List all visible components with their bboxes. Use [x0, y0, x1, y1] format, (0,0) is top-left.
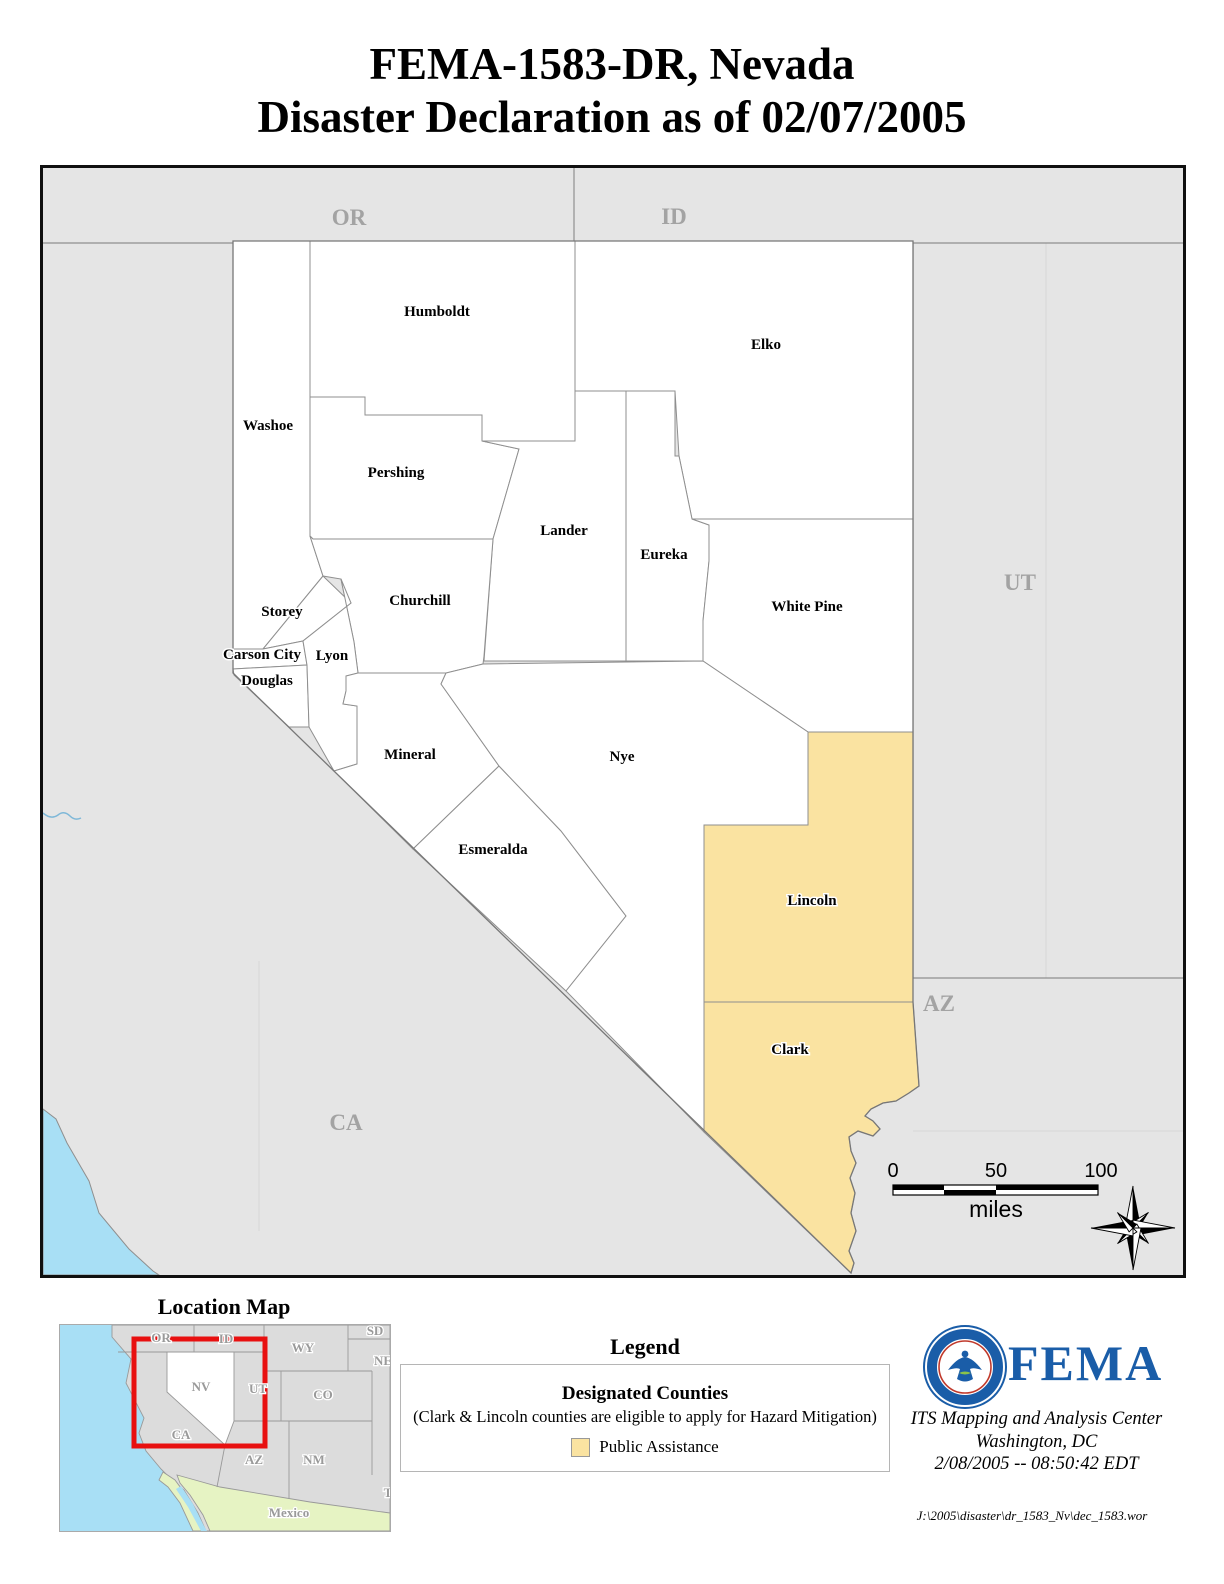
inset-state-label-sd: SD	[367, 1325, 384, 1338]
legend-title: Legend	[400, 1334, 890, 1360]
agency-line-1: ITS Mapping and Analysis Center	[894, 1408, 1179, 1431]
scale-tick-0: 0	[887, 1160, 898, 1182]
county-label-mineral: Mineral	[384, 747, 436, 763]
county-label-white-pine: White Pine	[771, 599, 843, 615]
location-map: ORIDWYSDNENVUTCOCAAZNMTMexico	[59, 1324, 391, 1532]
inset-state-label-az: AZ	[245, 1452, 263, 1467]
county-label-nye: Nye	[610, 749, 635, 765]
legend-item: Public Assistance	[401, 1437, 889, 1457]
state-label-or: OR	[332, 205, 367, 230]
public-assistance-swatch-icon	[571, 1438, 590, 1457]
main-map: HumboldtElkoWashoePershingLanderEurekaWh…	[40, 165, 1186, 1278]
file-path: J:\2005\disaster\dr_1583_Nv\dec_1583.wor	[880, 1508, 1184, 1524]
location-map-svg: ORIDWYSDNENVUTCOCAAZNMTMexico	[60, 1325, 390, 1531]
legend-item-label: Public Assistance	[599, 1437, 718, 1457]
fema-wordmark: FEMA	[1008, 1334, 1163, 1392]
state-label-az: AZ	[923, 991, 955, 1016]
county-label-lander: Lander	[540, 523, 588, 539]
page: FEMA-1583-DR, Nevada Disaster Declaratio…	[0, 0, 1224, 1584]
inset-state-label-ne: NE	[374, 1353, 390, 1368]
location-map-title: Location Map	[59, 1294, 389, 1320]
inset-state-label-ca: CA	[172, 1427, 191, 1442]
county-label-lyon: Lyon	[316, 648, 349, 664]
inset-state-label-ut: UT	[249, 1381, 267, 1396]
inset-state-label-id: ID	[219, 1331, 233, 1346]
county-label-washoe: Washoe	[243, 418, 293, 434]
scale-seg-1	[893, 1185, 944, 1190]
state-label-ca: CA	[329, 1110, 363, 1135]
county-label-esmeralda: Esmeralda	[458, 842, 528, 858]
inset-state-label-co: CO	[313, 1387, 333, 1402]
inset-state-label-nm: NM	[303, 1452, 325, 1467]
agency-block: ITS Mapping and Analysis Center Washingt…	[894, 1408, 1179, 1476]
nevada-map-svg: HumboldtElkoWashoePershingLanderEurekaWh…	[43, 168, 1183, 1275]
title-line-2: Disaster Declaration as of 02/07/2005	[0, 91, 1224, 144]
agency-line-3: 2/08/2005 -- 08:50:42 EDT	[894, 1453, 1179, 1476]
state-label-ut: UT	[1004, 570, 1036, 595]
page-title: FEMA-1583-DR, Nevada Disaster Declaratio…	[0, 38, 1224, 144]
county-label-carson-city: Carson City	[223, 647, 301, 663]
inset-state-label-mexico: Mexico	[269, 1505, 309, 1520]
scale-seg-2	[996, 1185, 1098, 1190]
county-label-elko: Elko	[751, 337, 781, 353]
agency-line-2: Washington, DC	[894, 1431, 1179, 1454]
county-label-storey: Storey	[261, 604, 303, 620]
inset-state-label-nv: NV	[192, 1379, 211, 1394]
county-label-churchill: Churchill	[389, 593, 450, 609]
dhs-seal-icon	[921, 1323, 1009, 1411]
county-label-douglas: Douglas	[241, 673, 293, 689]
scale-tick-100: 100	[1084, 1160, 1117, 1182]
state-label-id: ID	[661, 204, 687, 229]
county-label-clark: Clark	[771, 1042, 809, 1058]
county-label-lincoln: Lincoln	[787, 893, 837, 909]
inset-state-label-wy: WY	[292, 1340, 315, 1355]
inset-state-label-or: OR	[151, 1330, 171, 1345]
title-line-1: FEMA-1583-DR, Nevada	[0, 38, 1224, 91]
legend-heading: Designated Counties	[401, 1383, 889, 1405]
legend-note: (Clark & Lincoln counties are eligible t…	[401, 1407, 889, 1427]
inset-state-label-t: T	[384, 1485, 390, 1500]
county-label-eureka: Eureka	[640, 547, 688, 563]
legend-box: Designated Counties (Clark & Lincoln cou…	[400, 1364, 890, 1472]
scale-seg-3	[944, 1190, 996, 1195]
county-label-pershing: Pershing	[368, 465, 425, 481]
scale-unit: miles	[969, 1196, 1023, 1222]
county-label-humboldt: Humboldt	[404, 304, 470, 320]
scale-tick-50: 50	[985, 1160, 1007, 1182]
